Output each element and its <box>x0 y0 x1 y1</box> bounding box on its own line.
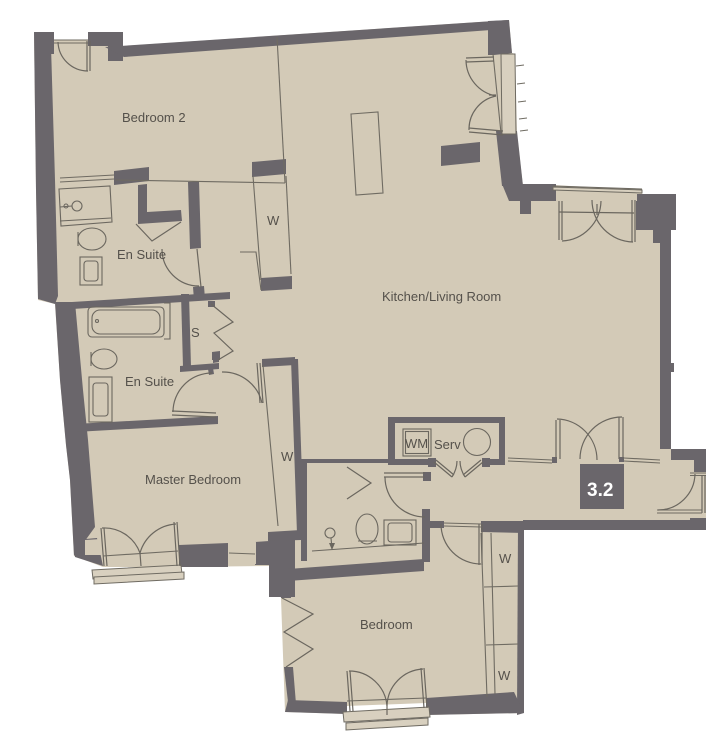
svg-text:W: W <box>499 551 512 566</box>
svg-text:En Suite: En Suite <box>117 247 166 262</box>
svg-text:W: W <box>498 668 511 683</box>
svg-text:Bedroom: Bedroom <box>360 617 413 632</box>
svg-text:Bedroom 2: Bedroom 2 <box>122 110 186 125</box>
svg-text:Serv: Serv <box>434 437 461 452</box>
svg-text:3.2: 3.2 <box>587 480 613 501</box>
svg-text:Master Bedroom: Master Bedroom <box>145 472 241 487</box>
svg-text:S: S <box>191 325 200 340</box>
svg-text:En Suite: En Suite <box>125 374 174 389</box>
svg-text:W: W <box>281 449 294 464</box>
svg-text:Kitchen/Living Room: Kitchen/Living Room <box>382 289 501 304</box>
svg-text:W: W <box>267 213 280 228</box>
svg-text:WM: WM <box>405 436 428 451</box>
